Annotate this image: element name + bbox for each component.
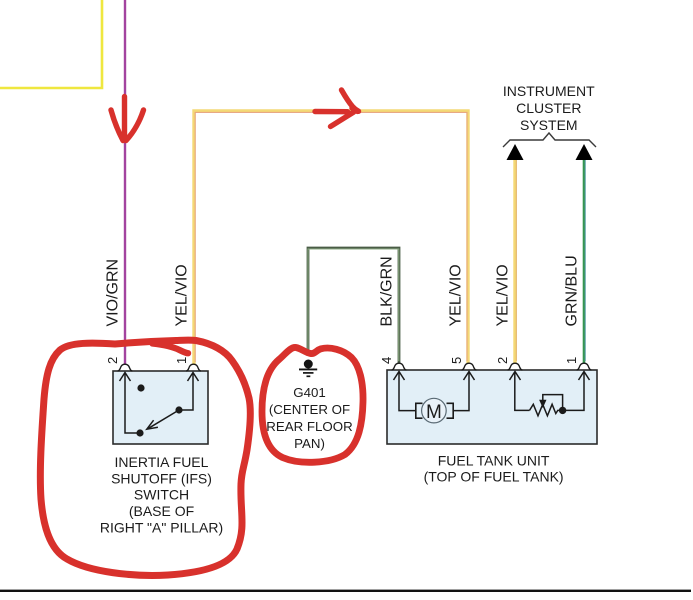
- svg-text:SYSTEM: SYSTEM: [520, 117, 578, 133]
- svg-text:G401: G401: [293, 385, 326, 400]
- svg-text:(BASE OF: (BASE OF: [129, 503, 194, 519]
- svg-text:M: M: [426, 402, 442, 423]
- svg-text:BLK/GRN: BLK/GRN: [379, 256, 396, 326]
- svg-text:YEL/VIO: YEL/VIO: [448, 264, 465, 326]
- svg-text:INSTRUMENT: INSTRUMENT: [503, 83, 595, 99]
- svg-text:2: 2: [495, 357, 510, 364]
- svg-text:INERTIA FUEL: INERTIA FUEL: [115, 454, 209, 470]
- svg-text:GRN/BLU: GRN/BLU: [564, 255, 581, 326]
- svg-text:YEL/VIO: YEL/VIO: [174, 264, 191, 326]
- svg-text:YEL/VIO: YEL/VIO: [495, 264, 512, 326]
- svg-text:1: 1: [174, 357, 189, 364]
- svg-text:REAR FLOOR: REAR FLOOR: [266, 419, 352, 434]
- svg-text:2: 2: [105, 357, 120, 364]
- svg-text:1: 1: [564, 357, 579, 364]
- svg-text:CLUSTER: CLUSTER: [516, 100, 581, 116]
- svg-text:5: 5: [449, 357, 464, 364]
- svg-text:RIGHT "A" PILLAR): RIGHT "A" PILLAR): [100, 519, 223, 535]
- svg-text:PAN): PAN): [294, 436, 325, 451]
- svg-text:FUEL TANK UNIT: FUEL TANK UNIT: [438, 453, 550, 469]
- svg-text:VIO/GRN: VIO/GRN: [105, 259, 122, 327]
- svg-text:(CENTER OF: (CENTER OF: [269, 402, 350, 417]
- svg-text:(TOP OF FUEL TANK): (TOP OF FUEL TANK): [424, 469, 564, 485]
- svg-text:SWITCH: SWITCH: [134, 487, 189, 503]
- svg-text:SHUTOFF (IFS): SHUTOFF (IFS): [111, 470, 212, 486]
- svg-text:4: 4: [379, 357, 394, 364]
